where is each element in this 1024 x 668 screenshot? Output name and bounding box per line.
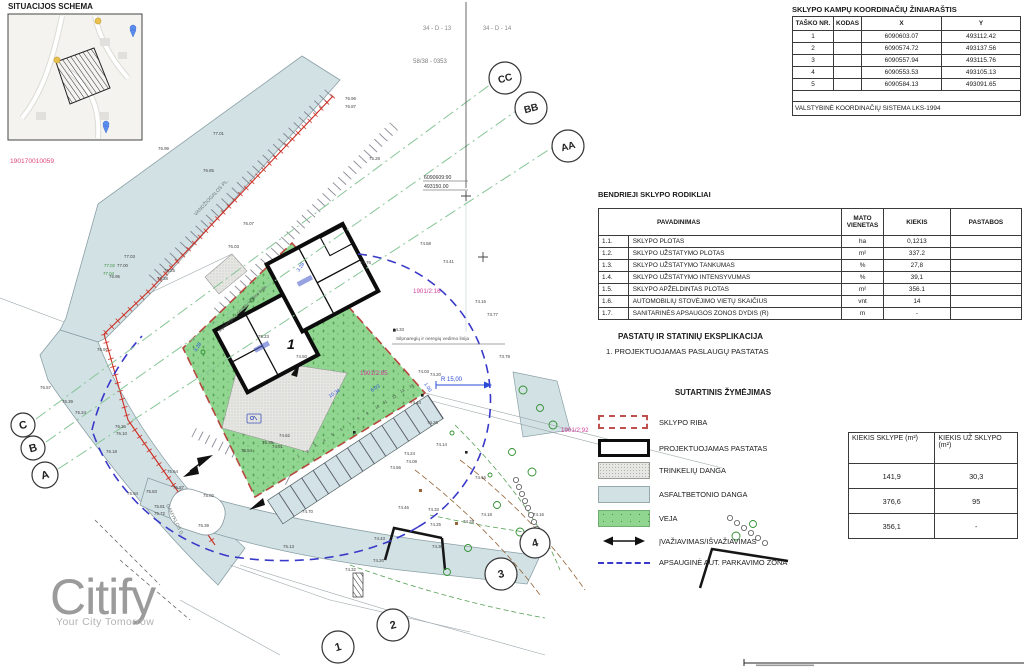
- plan-label: 1901/2:92: [561, 427, 589, 434]
- legend-item-lawn: VEJA: [598, 510, 677, 527]
- plan-label: 74.25: [430, 522, 442, 527]
- plan-label: 76.07: [243, 221, 255, 226]
- table-cell: 1.3.: [599, 260, 629, 272]
- plan-label: 76.87: [345, 104, 357, 109]
- site-indicators-block: BENDRIEJI SKLYPO RODIKLIAI PAVADINIMAS M…: [598, 190, 1024, 320]
- plan-label: 74.14: [436, 442, 448, 447]
- plan-label: 77.04: [103, 271, 115, 276]
- col-tasko-nr: TAŠKO NR.: [793, 17, 834, 31]
- plan-label: 75.87: [173, 485, 185, 490]
- plan-label: 76.85: [203, 168, 215, 173]
- table-header-row: PAVADINIMAS MATO VIENETAS KIEKIS PASTABO…: [599, 209, 1022, 236]
- table-cell: 1.4.: [599, 272, 629, 284]
- table-cell: [950, 260, 1021, 272]
- table-cell: [950, 284, 1021, 296]
- paver-swatch: [598, 462, 650, 479]
- table-cell: 493112.42: [942, 31, 1021, 43]
- col-pavadinimas: PAVADINIMAS: [599, 209, 842, 236]
- plan-label: 74.33: [428, 507, 440, 512]
- plan-label: 74.91: [272, 444, 284, 449]
- site-boundary-swatch: [598, 415, 648, 429]
- title-block-edge: [744, 659, 1024, 666]
- plan-label: 77.00: [117, 263, 129, 268]
- table-cell: [833, 79, 861, 91]
- coordinates-table-title: SKLYPO KAMPŲ KOORDINAČIŲ ŽINIARAŠTIS: [792, 5, 1023, 14]
- table-cell: 493091.65: [942, 79, 1021, 91]
- table-cell: 1.6.: [599, 296, 629, 308]
- legend-item-protective-zone: APSAUGINĖ AUT. PARKAVIMO ZONA: [598, 558, 787, 567]
- table-row: 56090584.13493091.65: [793, 79, 1021, 91]
- plan-label: 74.24: [404, 451, 416, 456]
- plan-label: 75.64: [167, 469, 179, 474]
- table-header-row: TAŠKO NR. KODAS X Y: [793, 17, 1021, 31]
- table-cell: 1.7.: [599, 308, 629, 320]
- plan-label: 1: [287, 336, 295, 352]
- coordinates-table: TAŠKO NR. KODAS X Y 16090603.07493112.42…: [792, 16, 1021, 116]
- plan-label: 34 - D - 13: [423, 26, 452, 32]
- table-cell: m²: [842, 284, 884, 296]
- plan-label: 76.97: [97, 347, 109, 352]
- table-cell: 6090557.94: [862, 55, 942, 67]
- legend-label: SKLYPO RIBA: [659, 418, 707, 427]
- table-cell: 356,1: [849, 514, 935, 539]
- table-cell: 14: [883, 296, 950, 308]
- plan-label: 76.18: [106, 449, 118, 454]
- table-cell: [833, 31, 861, 43]
- table-row: 46090553.53493105.13: [793, 67, 1021, 79]
- col-pastabos: PASTABOS: [950, 209, 1021, 236]
- col-kodas: KODAS: [833, 17, 861, 31]
- plan-label: 75.02: [203, 493, 215, 498]
- table-cell: [950, 236, 1021, 248]
- plan-label: 76.38: [157, 276, 169, 281]
- plan-label: 75.39: [262, 440, 274, 445]
- legend-quantities-block: KIEKIS SKLYPE (m²) KIEKIS UŽ SKLYPO (m²)…: [848, 432, 1020, 539]
- col-kiekis-sklype: KIEKIS SKLYPE (m²): [849, 433, 935, 464]
- legend-label: PROJEKTUOJAMAS PASTATAS: [659, 444, 767, 453]
- plan-label: 75.54: [241, 448, 253, 453]
- plan-label: 58/38 - 0353: [413, 59, 447, 65]
- table-row: 1.6.AUTOMOBILIŲ STOVĖJIMO VIETŲ SKAIČIUS…: [599, 296, 1022, 308]
- plan-label: 76.25: [164, 268, 176, 273]
- col-y: Y: [942, 17, 1021, 31]
- table-row: 1.4.SKLYPO UŽSTATYMO INTENSYVUMAS%39,1: [599, 272, 1022, 284]
- legend-label: APSAUGINĖ AUT. PARKAVIMO ZONA: [659, 558, 787, 567]
- col-kiekis: KIEKIS: [883, 209, 950, 236]
- plan-label: 74.16: [475, 475, 487, 480]
- table-cell: 30,3: [935, 464, 1018, 489]
- plan-label: 77.02: [104, 263, 116, 268]
- plan-label: 74.33: [393, 327, 405, 332]
- plan-label: 75.94: [127, 491, 139, 496]
- plan-label: 74.26: [427, 420, 439, 425]
- quantities-table: KIEKIS SKLYPE (m²) KIEKIS UŽ SKLYPO (m²)…: [848, 432, 1018, 539]
- parcel-code: 190170010059: [10, 158, 54, 165]
- table-cell: [950, 308, 1021, 320]
- plan-label: 6090609:90: [424, 175, 452, 181]
- plan-label: 75.13: [283, 544, 295, 549]
- plan-label: 76.57: [40, 385, 52, 390]
- table-cell: -: [883, 308, 950, 320]
- plan-label: 76.10: [116, 431, 128, 436]
- legend-item-site-boundary: SKLYPO RIBA: [598, 415, 707, 429]
- indicators-table: PAVADINIMAS MATO VIENETAS KIEKIS PASTABO…: [598, 208, 1022, 320]
- table-cell: 141,9: [849, 464, 935, 489]
- table-row: 356,1-: [849, 514, 1018, 539]
- plan-label: 73.78: [499, 354, 511, 359]
- plan-label: 76.99: [158, 146, 170, 151]
- spacer-row: [793, 91, 1021, 102]
- plan-label: 75.81: [154, 504, 166, 509]
- plan-label: 74.08: [406, 459, 418, 464]
- table-cell: m²: [842, 248, 884, 260]
- plan-label: 34 - D - 14: [483, 26, 512, 32]
- legend-item-building: PROJEKTUOJAMAS PASTATAS: [598, 439, 767, 457]
- plan-label: 76.03: [228, 244, 240, 249]
- table-cell: SKLYPO PLOTAS: [628, 236, 841, 248]
- table-cell: 493137.56: [942, 43, 1021, 55]
- plan-label: 76.39: [62, 399, 74, 404]
- table-cell: SANITARINĖS APSAUGOS ZONOS DYDIS (R): [628, 308, 841, 320]
- legend-item-asphalt: ASFALTBETONIO DANGA: [598, 486, 747, 503]
- explication-title: PASTATŲ IR STATINIŲ EKSPLIKACIJA: [598, 332, 1018, 341]
- plan-label: 74.62: [279, 433, 291, 438]
- plan-label: 74.28: [463, 519, 475, 524]
- table-cell: 39,1: [883, 272, 950, 284]
- plan-label: 74.46: [398, 505, 410, 510]
- plan-label: 75.23: [258, 334, 270, 339]
- plan-label: 76.36: [115, 424, 127, 429]
- plan-label: 74.20: [373, 558, 385, 563]
- legend-title: SUTARTINIS ŽYMĖJIMAS: [598, 388, 848, 397]
- plan-label: 74.41: [443, 259, 455, 264]
- table-cell: m: [842, 308, 884, 320]
- plan-label: 493150.00: [424, 184, 449, 190]
- table-cell: [833, 43, 861, 55]
- table-cell: 4: [793, 67, 834, 79]
- table-cell: 356.1: [883, 284, 950, 296]
- plan-label: 75.28: [369, 156, 381, 161]
- legend-label: TRINKELIŲ DANGA: [659, 466, 726, 475]
- plan-label: 76.96: [345, 96, 357, 101]
- legend-label: ASFALTBETONIO DANGA: [659, 490, 747, 499]
- table-cell: 337.2: [883, 248, 950, 260]
- plan-label: 74.16: [475, 299, 487, 304]
- plan-label: 74.20: [430, 372, 442, 377]
- plan-label: 1901/2:85: [360, 370, 388, 377]
- table-cell: 6090603.07: [862, 31, 942, 43]
- table-cell: %: [842, 272, 884, 284]
- table-row: 376,695: [849, 489, 1018, 514]
- table-cell: 6090574.72: [862, 43, 942, 55]
- plan-label: 74.43: [374, 536, 386, 541]
- legend-item-pavers: TRINKELIŲ DANGA: [598, 462, 726, 479]
- explication-item: 1. PROJEKTUOJAMAS PASLAUGŲ PASTATAS: [598, 347, 1018, 356]
- plan-label: 77.01: [213, 131, 225, 136]
- plan-label: 77.03: [124, 254, 136, 259]
- plan-label: 74.16: [533, 512, 545, 517]
- grid-marks: [392, 2, 505, 344]
- indicators-title: BENDRIEJI SKLYPO RODIKLIAI: [598, 190, 1024, 199]
- legend-label: ĮVAŽIAVIMAS/IŠVAŽIAVIMAS: [659, 537, 757, 546]
- plan-label: 74.18: [481, 512, 493, 517]
- situation-schema-title: SITUACIJOS SCHEMA: [8, 2, 93, 11]
- plan-label: 75.83: [146, 489, 158, 494]
- table-cell: [950, 272, 1021, 284]
- table-row: 1.2.SKLYPO UŽSTATYMO PLOTASm²337.2: [599, 248, 1022, 260]
- table-row: 1.1.SKLYPO PLOTASha0,1213: [599, 236, 1022, 248]
- col-x: X: [862, 17, 942, 31]
- plan-label: 74.58: [420, 241, 432, 246]
- table-cell: 3: [793, 55, 834, 67]
- double-arrow-icon: [602, 534, 646, 548]
- explication-block: PASTATŲ IR STATINIŲ EKSPLIKACIJA 1. PROJ…: [598, 332, 1018, 356]
- plan-label: Silpnaregių ir neregių vedimo linija: [396, 336, 469, 342]
- table-row: 1.5.SKLYPO APŽELDINTAS PLOTASm²356.1: [599, 284, 1022, 296]
- table-cell: [950, 296, 1021, 308]
- table-cell: 27,8: [883, 260, 950, 272]
- plan-label: 74.56: [390, 465, 402, 470]
- table-row: 26090574.72493137.56: [793, 43, 1021, 55]
- plan-label: 74.32: [345, 567, 357, 572]
- table-row: 36090557.94493115.76: [793, 55, 1021, 67]
- table-cell: [833, 55, 861, 67]
- logo-tagline: Your City Tomorrow: [56, 616, 155, 628]
- plan-label: 74.70: [302, 509, 314, 514]
- table-cell: 6090553.53: [862, 67, 942, 79]
- table-cell: 1.2.: [599, 248, 629, 260]
- table-cell: 493105.13: [942, 67, 1021, 79]
- plan-label: 74.50: [296, 354, 308, 359]
- table-cell: 1.5.: [599, 284, 629, 296]
- plan-label: 75.39: [198, 523, 210, 528]
- col-kiekis-uz-sklypo: KIEKIS UŽ SKLYPO (m²): [935, 433, 1018, 464]
- legend-label: VEJA: [659, 514, 677, 523]
- corner-coordinates-block: SKLYPO KAMPŲ KOORDINAČIŲ ŽINIARAŠTIS TAŠ…: [792, 5, 1023, 116]
- dashed-zone-swatch: [598, 562, 650, 564]
- asphalt-swatch: [598, 486, 650, 503]
- table-row: 1.7.SANITARINĖS APSAUGOS ZONOS DYDIS (R)…: [599, 308, 1022, 320]
- plan-label: R 15,00: [441, 377, 463, 383]
- table-cell: AUTOMOBILIŲ STOVĖJIMO VIETŲ SKAIČIUS: [628, 296, 841, 308]
- plan-label: 74.30: [432, 544, 444, 549]
- table-cell: ha: [842, 236, 884, 248]
- situation-map: [8, 14, 142, 140]
- plan-label: 76.24: [75, 410, 87, 415]
- plan-label: 74.76: [360, 260, 372, 265]
- table-cell: vnt: [842, 296, 884, 308]
- table-row: 1.3.SKLYPO UŽSTATYMO TANKUMAS%27,8: [599, 260, 1022, 272]
- table-cell: -: [935, 514, 1018, 539]
- table-cell: SKLYPO UŽSTATYMO INTENSYVUMAS: [628, 272, 841, 284]
- legend-item-entrance: ĮVAŽIAVIMAS/IŠVAŽIAVIMAS: [598, 534, 757, 548]
- table-cell: SKLYPO UŽSTATYMO PLOTAS: [628, 248, 841, 260]
- table-cell: 493115.76: [942, 55, 1021, 67]
- building-swatch: [598, 439, 650, 457]
- table-cell: 0,1213: [883, 236, 950, 248]
- plan-label: 1901/2:16: [413, 288, 441, 295]
- coordinate-system-row: VALSTYBINĖ KOORDINAČIŲ SISTEMA LKS-1994: [793, 102, 1021, 116]
- table-cell: 376,6: [849, 489, 935, 514]
- table-cell: 5: [793, 79, 834, 91]
- table-cell: 95: [935, 489, 1018, 514]
- logo-wordmark: Citify: [50, 572, 155, 622]
- plan-label: 74.44: [410, 400, 422, 405]
- table-cell: 2: [793, 43, 834, 55]
- plan-label: 73.77: [487, 312, 499, 317]
- citify-logo: Citify Your City Tomorrow: [50, 572, 155, 628]
- table-cell: SKLYPO APŽELDINTAS PLOTAS: [628, 284, 841, 296]
- table-cell: %: [842, 260, 884, 272]
- table-cell: [833, 67, 861, 79]
- table-cell: 6090584.13: [862, 79, 942, 91]
- table-row: 16090603.07493112.42: [793, 31, 1021, 43]
- table-header-row: KIEKIS SKLYPE (m²) KIEKIS UŽ SKLYPO (m²): [849, 433, 1018, 464]
- table-cell: 1: [793, 31, 834, 43]
- lawn-swatch: [598, 510, 650, 527]
- table-cell: [950, 248, 1021, 260]
- table-row: 141,930,3: [849, 464, 1018, 489]
- col-mato-vienetas: MATO VIENETAS: [842, 209, 884, 236]
- plan-label: 74.03: [418, 369, 430, 374]
- plan-label: 75.72: [154, 511, 166, 516]
- table-cell: SKLYPO UŽSTATYMO TANKUMAS: [628, 260, 841, 272]
- table-cell: 1.1.: [599, 236, 629, 248]
